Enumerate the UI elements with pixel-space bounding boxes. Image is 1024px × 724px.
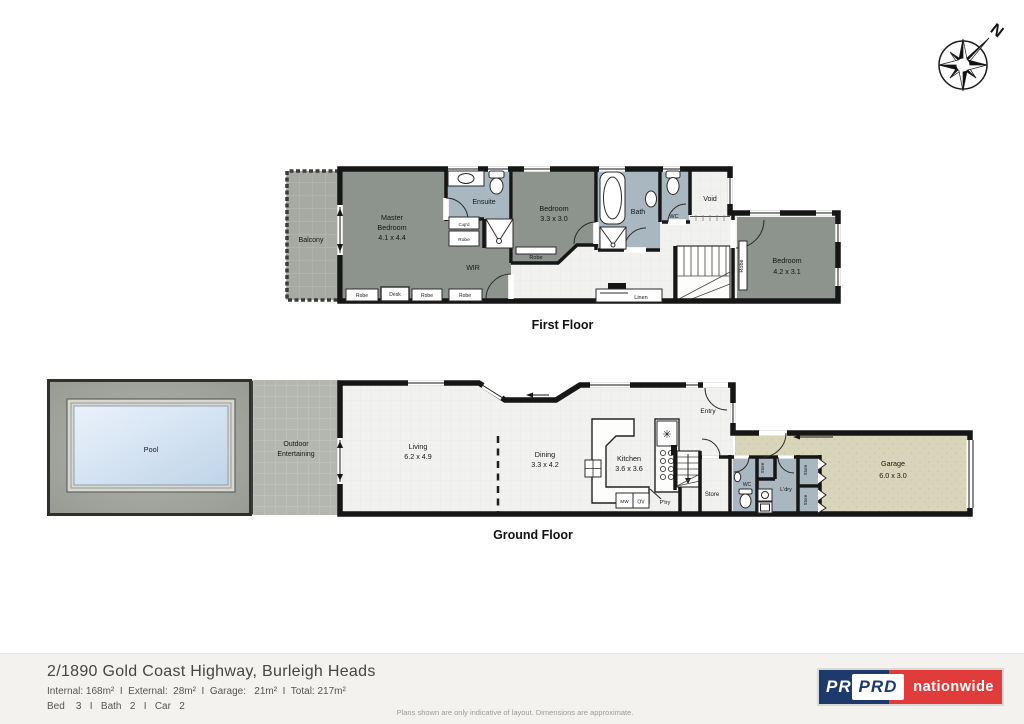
- room-label-bedroom3: Bedroom: [772, 256, 801, 265]
- logo-nationwide-text: nationwide: [913, 679, 1002, 695]
- basin-fixture: [646, 191, 657, 207]
- label-desk: Desk: [389, 292, 401, 298]
- room-label-void: Void: [703, 196, 717, 203]
- label-robe: Robe: [459, 293, 471, 299]
- room-label-entry: Entry: [700, 408, 716, 415]
- room-label-wc: WC: [743, 482, 752, 488]
- property-address: 2/1890 Gold Coast Highway, Burleigh Head…: [47, 663, 376, 681]
- compass-center: [957, 59, 970, 72]
- room-label-living: Living: [409, 442, 428, 451]
- room-dims-kitchen: 3.6 x 3.6: [615, 464, 643, 473]
- shower-fixture: [486, 219, 513, 248]
- room-dims-dining: 3.3 x 4.2: [531, 460, 559, 469]
- linen-closet: [596, 289, 662, 302]
- room-dims-bedroom3: 4.2 x 3.1: [773, 267, 801, 276]
- room-dims-living: 6.2 x 4.9: [404, 452, 432, 461]
- room-dims-master: 4.1 x 4.4: [378, 233, 406, 242]
- room-balcony: [286, 171, 339, 300]
- room-label-wir: WIR: [466, 265, 480, 272]
- vanity-fixture: [448, 171, 484, 186]
- room-label-pool: Pool: [144, 445, 159, 454]
- room-label-outdoor-1: Outdoor: [283, 441, 309, 448]
- wall-stub-stairs: [671, 445, 677, 455]
- room-label-garage: Garage: [881, 459, 905, 468]
- label-robe: Robe: [458, 237, 470, 243]
- room-label-master-2: Bedroom: [377, 223, 406, 232]
- room-label-kitchen: Kitchen: [617, 454, 641, 463]
- toilet-fixture: [739, 489, 752, 508]
- logo-prd-box: PRD: [852, 674, 904, 700]
- floor-plan-page: N: [0, 0, 1024, 724]
- room-dims-bedroom2: 3.3 x 3.0: [540, 214, 568, 223]
- disclaimer-text: Plans shown are only indicative of layou…: [370, 708, 660, 717]
- first-floor-caption: First Floor: [280, 318, 845, 332]
- room-label-bedroom2: Bedroom: [539, 204, 568, 213]
- room-label-bath: Bath: [631, 209, 646, 216]
- label-robe: Robe: [529, 255, 542, 261]
- label-cupboard: Cup'd: [459, 222, 470, 227]
- label-linen: Linen: [634, 295, 647, 301]
- room-label-laundry: L'dry: [780, 487, 792, 493]
- label-microwave: MW: [620, 499, 629, 504]
- logo-red-panel: nationwide: [889, 670, 1002, 704]
- room-label-master-1: Master: [381, 213, 404, 222]
- rooms-summary: Bed 3 I Bath 2 I Car 2: [47, 701, 185, 712]
- sink-fixture: [585, 460, 601, 477]
- footer-bar: 2/1890 Gold Coast Highway, Burleigh Head…: [0, 653, 1024, 724]
- toilet-fixture: [666, 171, 680, 195]
- label-store-small: Store: [760, 462, 765, 473]
- label-store-right-1: Store: [803, 464, 808, 475]
- room-label-dining: Dining: [535, 450, 555, 459]
- label-store-right-2: Store: [803, 494, 808, 505]
- area-summary: Internal: 168m² I External: 28m² I Garag…: [47, 686, 346, 697]
- logo-prd-box-text: PRD: [859, 677, 898, 697]
- first-floor-plan: Balcony Master Bedroom 4.1 x 4.4 Ensuite…: [280, 160, 845, 312]
- basin-fixture: [734, 472, 740, 482]
- room-label-outdoor-2: Entertaining: [277, 451, 314, 458]
- room-label-store: Store: [705, 492, 720, 498]
- prd-nationwide-logo: PRD nationwide PRD: [817, 668, 1004, 706]
- staircase-first-floor: [677, 246, 730, 302]
- room-store-right-2: [798, 488, 820, 514]
- compass-rose-icon: N: [925, 18, 1015, 103]
- robe-closet: [516, 247, 556, 254]
- staircase-ground-floor: [677, 451, 700, 487]
- bathtub-fixture: [600, 172, 625, 224]
- room-label-wc: WC: [669, 214, 678, 220]
- laundry-tub-fixture: [758, 502, 772, 513]
- ground-floor-plan: Pool Outdoor Entertaining Living 6.2 x 4…: [44, 374, 980, 522]
- toilet-fixture: [489, 171, 504, 194]
- room-label-pantry: P'try: [660, 500, 671, 506]
- label-robe: Robe: [739, 259, 745, 272]
- ground-floor-caption: Ground Floor: [200, 528, 866, 542]
- shower-fixture: [600, 227, 626, 249]
- room-store-right-1: [798, 455, 820, 486]
- compass-north-label: N: [987, 21, 1007, 42]
- room-label-balcony: Balcony: [299, 237, 324, 244]
- cooktop-icon: ✳: [662, 429, 671, 441]
- room-label-ensuite: Ensuite: [472, 199, 495, 206]
- label-oven: OV: [637, 500, 645, 506]
- entry-door-arrow-icon: [526, 393, 549, 398]
- room-dims-garage: 6.0 x 3.0: [879, 471, 907, 480]
- washer-fixture: [758, 489, 772, 501]
- label-robe: Robe: [421, 293, 433, 299]
- label-robe: Robe: [356, 293, 368, 299]
